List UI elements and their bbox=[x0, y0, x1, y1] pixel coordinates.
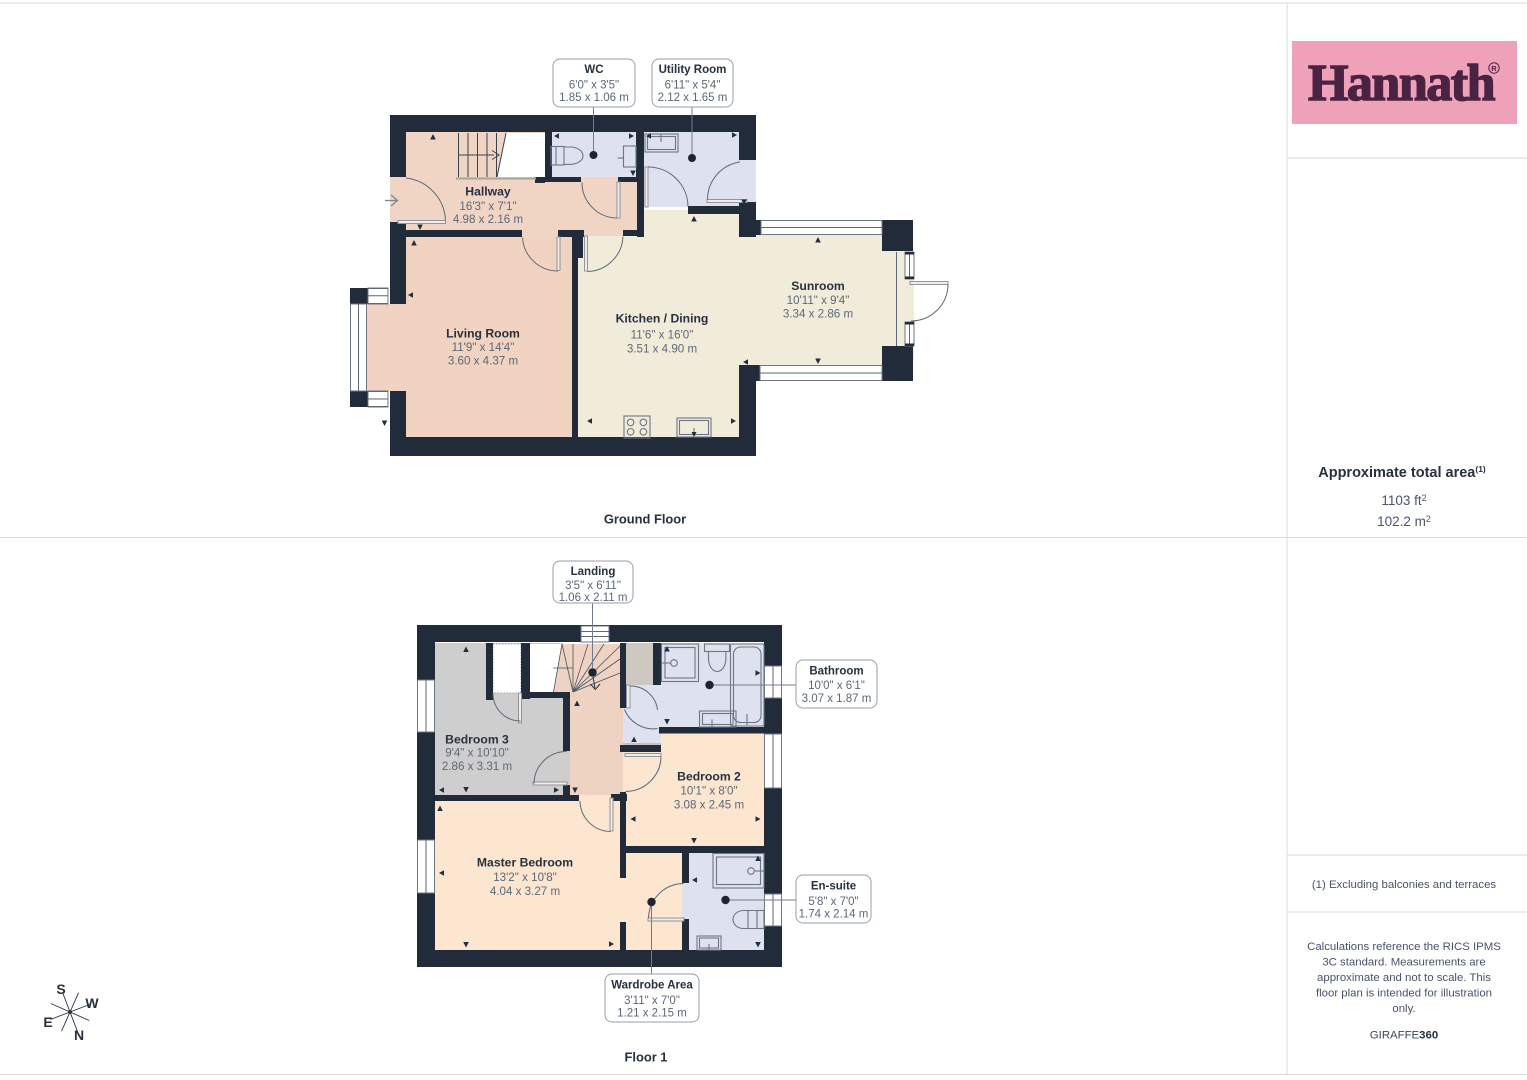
svg-text:Approximate total area(1): Approximate total area(1) bbox=[1318, 464, 1486, 481]
svg-text:13'2" x 10'8": 13'2" x 10'8" bbox=[493, 871, 557, 884]
svg-text:Bedroom 3: Bedroom 3 bbox=[445, 732, 509, 746]
svg-text:3.34 x 2.86 m: 3.34 x 2.86 m bbox=[783, 308, 853, 321]
svg-text:11'6" x 16'0": 11'6" x 16'0" bbox=[631, 329, 694, 342]
svg-text:Ground Floor: Ground Floor bbox=[604, 512, 686, 527]
svg-text:4.04 x 3.27 m: 4.04 x 3.27 m bbox=[490, 885, 560, 898]
svg-text:Hannath: Hannath bbox=[1308, 55, 1496, 112]
svg-text:5'8" x 7'0": 5'8" x 7'0" bbox=[808, 896, 858, 908]
svg-text:approximate and not to scale.: approximate and not to scale. This bbox=[1317, 972, 1491, 984]
svg-text:3.51 x 4.90 m: 3.51 x 4.90 m bbox=[627, 342, 697, 355]
svg-text:N: N bbox=[74, 1027, 84, 1043]
svg-text:Wardrobe Area: Wardrobe Area bbox=[611, 980, 693, 992]
svg-text:1.06 x 2.11 m: 1.06 x 2.11 m bbox=[559, 592, 628, 604]
svg-text:1103 ft2: 1103 ft2 bbox=[1381, 493, 1426, 508]
svg-text:3C standard. Measurements are: 3C standard. Measurements are bbox=[1322, 957, 1485, 969]
svg-text:Master Bedroom: Master Bedroom bbox=[477, 856, 573, 870]
svg-text:Bathroom: Bathroom bbox=[809, 665, 863, 677]
svg-text:S: S bbox=[56, 981, 65, 997]
svg-text:Bedroom 2: Bedroom 2 bbox=[677, 769, 741, 783]
svg-text:102.2 m2: 102.2 m2 bbox=[1377, 514, 1431, 529]
svg-text:only.: only. bbox=[1392, 1003, 1415, 1015]
svg-text:Calculations reference the RIC: Calculations reference the RICS IPMS bbox=[1307, 941, 1501, 953]
svg-text:floor plan is intended for ill: floor plan is intended for illustration bbox=[1316, 988, 1492, 1000]
svg-text:4.98 x 2.16 m: 4.98 x 2.16 m bbox=[453, 213, 523, 226]
svg-text:Kitchen / Dining: Kitchen / Dining bbox=[616, 312, 709, 326]
svg-text:3'5" x 6'11": 3'5" x 6'11" bbox=[565, 580, 621, 592]
svg-text:9'4" x 10'10": 9'4" x 10'10" bbox=[445, 746, 509, 759]
svg-text:2.86 x 3.31 m: 2.86 x 3.31 m bbox=[442, 760, 512, 773]
svg-text:10'0" x 6'1": 10'0" x 6'1" bbox=[808, 680, 865, 692]
svg-text:16'3" x 7'1": 16'3" x 7'1" bbox=[459, 200, 516, 213]
svg-text:10'11" x 9'4": 10'11" x 9'4" bbox=[787, 294, 850, 307]
svg-text:3.07 x 1.87 m: 3.07 x 1.87 m bbox=[802, 693, 872, 705]
svg-text:1.21 x 2.15 m: 1.21 x 2.15 m bbox=[617, 1008, 687, 1020]
svg-text:Utility Room: Utility Room bbox=[659, 64, 727, 76]
svg-text:6'0" x 3'5": 6'0" x 3'5" bbox=[569, 79, 619, 91]
svg-text:Living Room: Living Room bbox=[446, 327, 520, 341]
svg-text:1.85 x 1.06 m: 1.85 x 1.06 m bbox=[559, 92, 629, 104]
svg-text:3'11" x 7'0": 3'11" x 7'0" bbox=[624, 995, 680, 1007]
svg-text:Floor 1: Floor 1 bbox=[625, 1050, 668, 1065]
svg-text:E: E bbox=[43, 1014, 52, 1030]
svg-text:Hallway: Hallway bbox=[465, 184, 511, 198]
svg-text:GIRAFFE360: GIRAFFE360 bbox=[1370, 1030, 1438, 1042]
svg-text:11'9" x 14'4": 11'9" x 14'4" bbox=[452, 341, 515, 354]
svg-text:Sunroom: Sunroom bbox=[791, 279, 845, 293]
svg-text:WC: WC bbox=[584, 64, 603, 76]
svg-text:En-suite: En-suite bbox=[811, 881, 856, 893]
svg-text:Landing: Landing bbox=[571, 566, 616, 578]
svg-text:6'11" x 5'4": 6'11" x 5'4" bbox=[665, 79, 721, 91]
svg-text:3.08 x 2.45 m: 3.08 x 2.45 m bbox=[674, 798, 744, 811]
svg-text:R: R bbox=[1491, 64, 1497, 73]
svg-text:1.74 x 2.14 m: 1.74 x 2.14 m bbox=[799, 909, 869, 921]
svg-text:(1) Excluding balconies and te: (1) Excluding balconies and terraces bbox=[1312, 879, 1497, 891]
svg-text:2.12 x 1.65 m: 2.12 x 1.65 m bbox=[658, 92, 728, 104]
svg-text:3.60 x 4.37 m: 3.60 x 4.37 m bbox=[448, 354, 518, 367]
svg-text:W: W bbox=[85, 995, 99, 1011]
svg-text:10'1" x 8'0": 10'1" x 8'0" bbox=[680, 784, 737, 797]
